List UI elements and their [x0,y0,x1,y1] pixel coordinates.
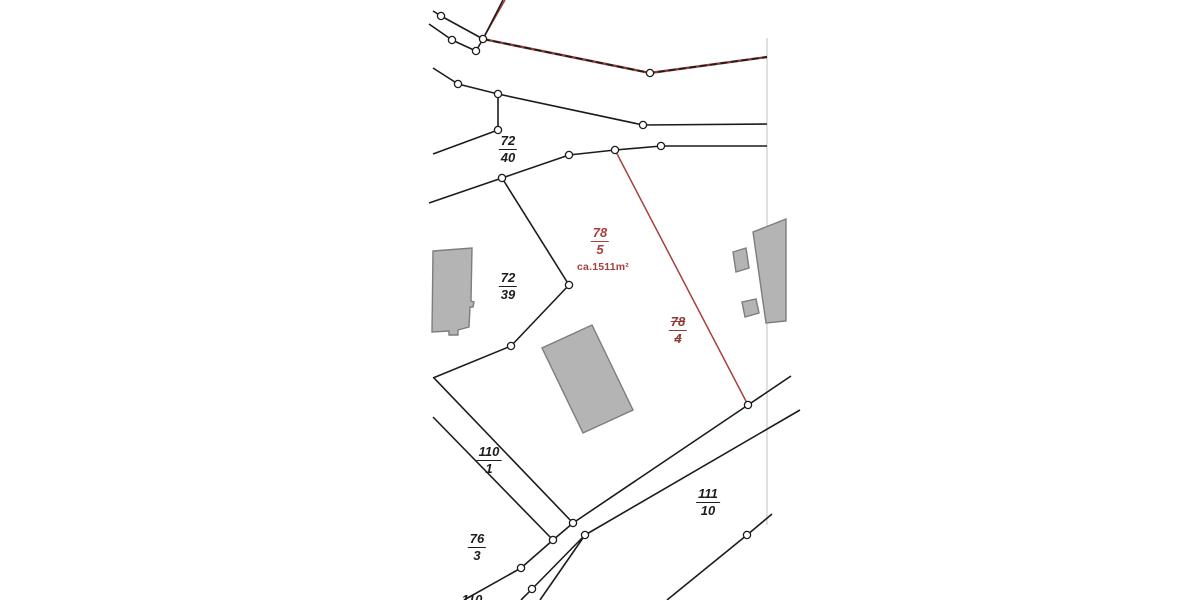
vertex-marker [517,564,524,571]
vertex-marker [494,126,501,133]
vertex-marker [744,401,751,408]
boundary-line [433,68,498,94]
cadastral-map: 72407239785784110111110763110ca.1511m² [0,0,1200,600]
vertex-marker [448,36,455,43]
boundary-line [667,514,772,600]
vertex-marker [565,281,572,288]
boundary-line [429,178,502,203]
vertex-marker [479,35,486,42]
boundary-line [483,0,503,39]
boundary-line [434,378,573,523]
vertex-marker [498,174,505,181]
boundary-line [498,94,767,125]
vertex-marker [472,47,479,54]
building-footprint [742,299,759,317]
boundary-line [433,417,553,540]
vertex-marker [646,69,653,76]
building-footprint [542,325,633,433]
boundary-line [585,410,800,535]
vertex-marker [611,146,618,153]
building-footprint [432,248,474,335]
vertex-marker [569,519,576,526]
boundary-line [502,146,767,178]
vertex-marker [549,536,556,543]
vertex-marker [528,585,535,592]
map-geometry [0,0,1200,600]
vertex-marker [507,342,514,349]
vertex-marker [657,142,664,149]
vertex-marker [454,80,461,87]
vertex-marker [494,90,501,97]
vertex-marker [581,531,588,538]
boundary-red-underlay [483,39,767,73]
vertex-marker [743,531,750,538]
boundary-line [433,130,498,154]
boundary-line [464,523,573,600]
vertex-marker [437,12,444,19]
red-boundary-line [615,150,748,405]
vertex-marker [639,121,646,128]
vertex-marker [565,151,572,158]
building-footprint [733,248,749,272]
